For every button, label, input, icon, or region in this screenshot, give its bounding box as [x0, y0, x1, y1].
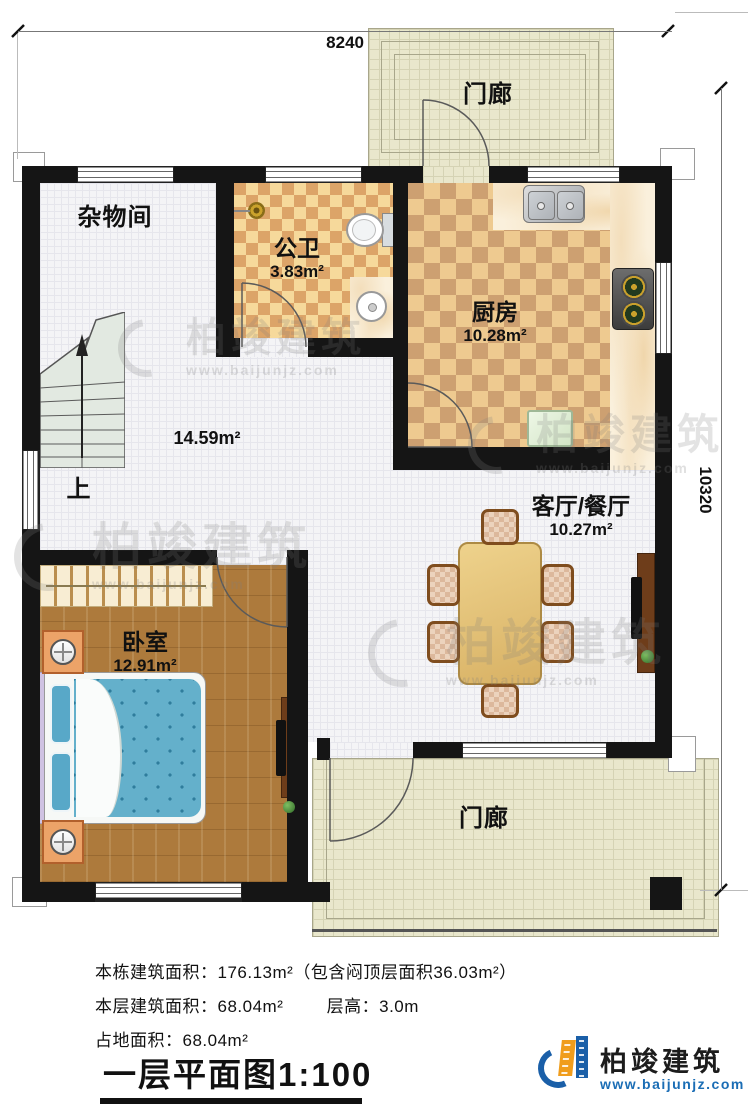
- bedroom-window: [95, 882, 242, 902]
- hall-window: [22, 450, 40, 530]
- room-label-hall-area: 14.59m²: [148, 428, 266, 448]
- porch-bottom-step-edge: [312, 929, 717, 932]
- dimension-top-value: 8240: [300, 33, 364, 53]
- room-label-porch-bottom: 门廊: [432, 806, 536, 833]
- dimension-line-right: [721, 88, 722, 890]
- porch-bottom-inner-line: [326, 758, 705, 919]
- company-logo-name: 柏竣建筑: [600, 1040, 724, 1079]
- bedroom-tv: [276, 720, 286, 776]
- nightstand: [42, 820, 84, 864]
- living-tv: [631, 577, 642, 639]
- room-label-kitchen: 厨房 10.28m²: [420, 300, 570, 345]
- company-logo: [538, 1034, 594, 1094]
- footer-total-area: 本栋建筑面积：176.13m²（包含闷顶层面积36.03m²）: [95, 958, 517, 983]
- shower-head-icon: [248, 202, 265, 219]
- dining-chair: [427, 564, 460, 606]
- title-underline: [100, 1098, 362, 1104]
- bathroom-door-threshold: [240, 338, 308, 357]
- lamp-icon: [50, 829, 76, 855]
- porch-column: [650, 877, 682, 910]
- bed-pillow: [50, 684, 72, 744]
- bed-pillow: [50, 752, 72, 812]
- room-label-porch-top: 门廊: [438, 82, 538, 109]
- footer-floor-height: 层高：3.0m: [327, 997, 419, 1016]
- dimension-right-value: 10320: [695, 430, 715, 550]
- dining-table: [458, 542, 542, 685]
- stove: [612, 268, 654, 330]
- toilet: [346, 211, 396, 249]
- room-label-bathroom: 公卫 3.83m²: [248, 236, 346, 281]
- entry-door-threshold: [330, 742, 413, 758]
- stairs-up-label: 上: [62, 477, 96, 504]
- plant-icon: [283, 801, 295, 813]
- room-label-living: 客厅/餐厅 10.27m²: [492, 494, 670, 539]
- dining-chair: [541, 564, 574, 606]
- bathroom-window: [265, 166, 362, 183]
- dining-chair: [481, 684, 519, 718]
- fridge: [527, 410, 573, 447]
- dimension-line-top: [18, 31, 672, 32]
- dining-chair: [541, 621, 574, 663]
- kitchen-sink: [523, 185, 585, 223]
- company-logo-url: www.baijunjz.com: [600, 1076, 745, 1092]
- plant-icon: [641, 650, 654, 663]
- living-window: [462, 742, 607, 758]
- footer-floor-area: 本层建筑面积：68.04m² 层高：3.0m: [95, 992, 419, 1017]
- page-title: 一层平面图1:100: [103, 1048, 372, 1096]
- wardrobe-rod: [46, 585, 206, 587]
- kitchen-side-window: [655, 262, 672, 354]
- porch-top-threshold: [423, 166, 489, 183]
- dining-chair: [427, 621, 460, 663]
- room-label-bedroom: 卧室 12.91m²: [93, 630, 197, 675]
- floor-plan-canvas: 8240 10320 门廊 杂物间 公卫 3.83m² 厨房 10.28m² 1…: [0, 0, 750, 1113]
- kitchen-window: [527, 166, 620, 183]
- logo-building-blue: [576, 1036, 588, 1078]
- nightstand: [42, 630, 84, 674]
- bathroom-sink: [356, 291, 387, 322]
- room-label-storage: 杂物间: [52, 205, 178, 232]
- storage-window: [77, 166, 174, 183]
- bedroom-door-threshold: [217, 550, 287, 565]
- lamp-icon: [50, 639, 76, 665]
